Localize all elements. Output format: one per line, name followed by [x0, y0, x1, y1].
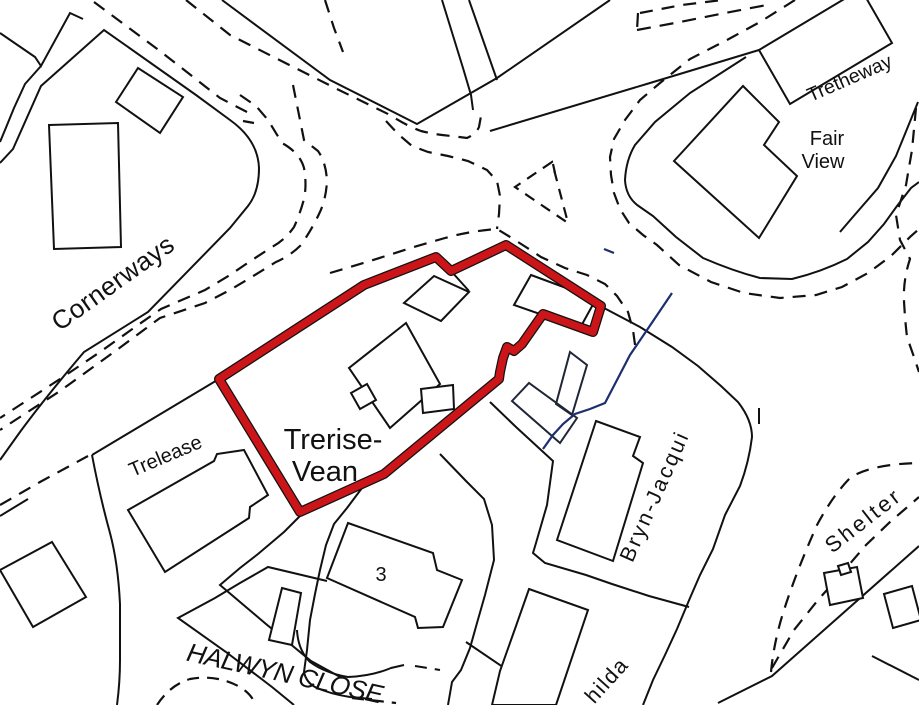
svg-text:Trerise-: Trerise- — [284, 424, 383, 456]
svg-text:View: View — [802, 151, 846, 173]
svg-text:Fair: Fair — [810, 128, 845, 150]
svg-text:Vean: Vean — [292, 456, 358, 488]
svg-text:3: 3 — [375, 564, 386, 586]
